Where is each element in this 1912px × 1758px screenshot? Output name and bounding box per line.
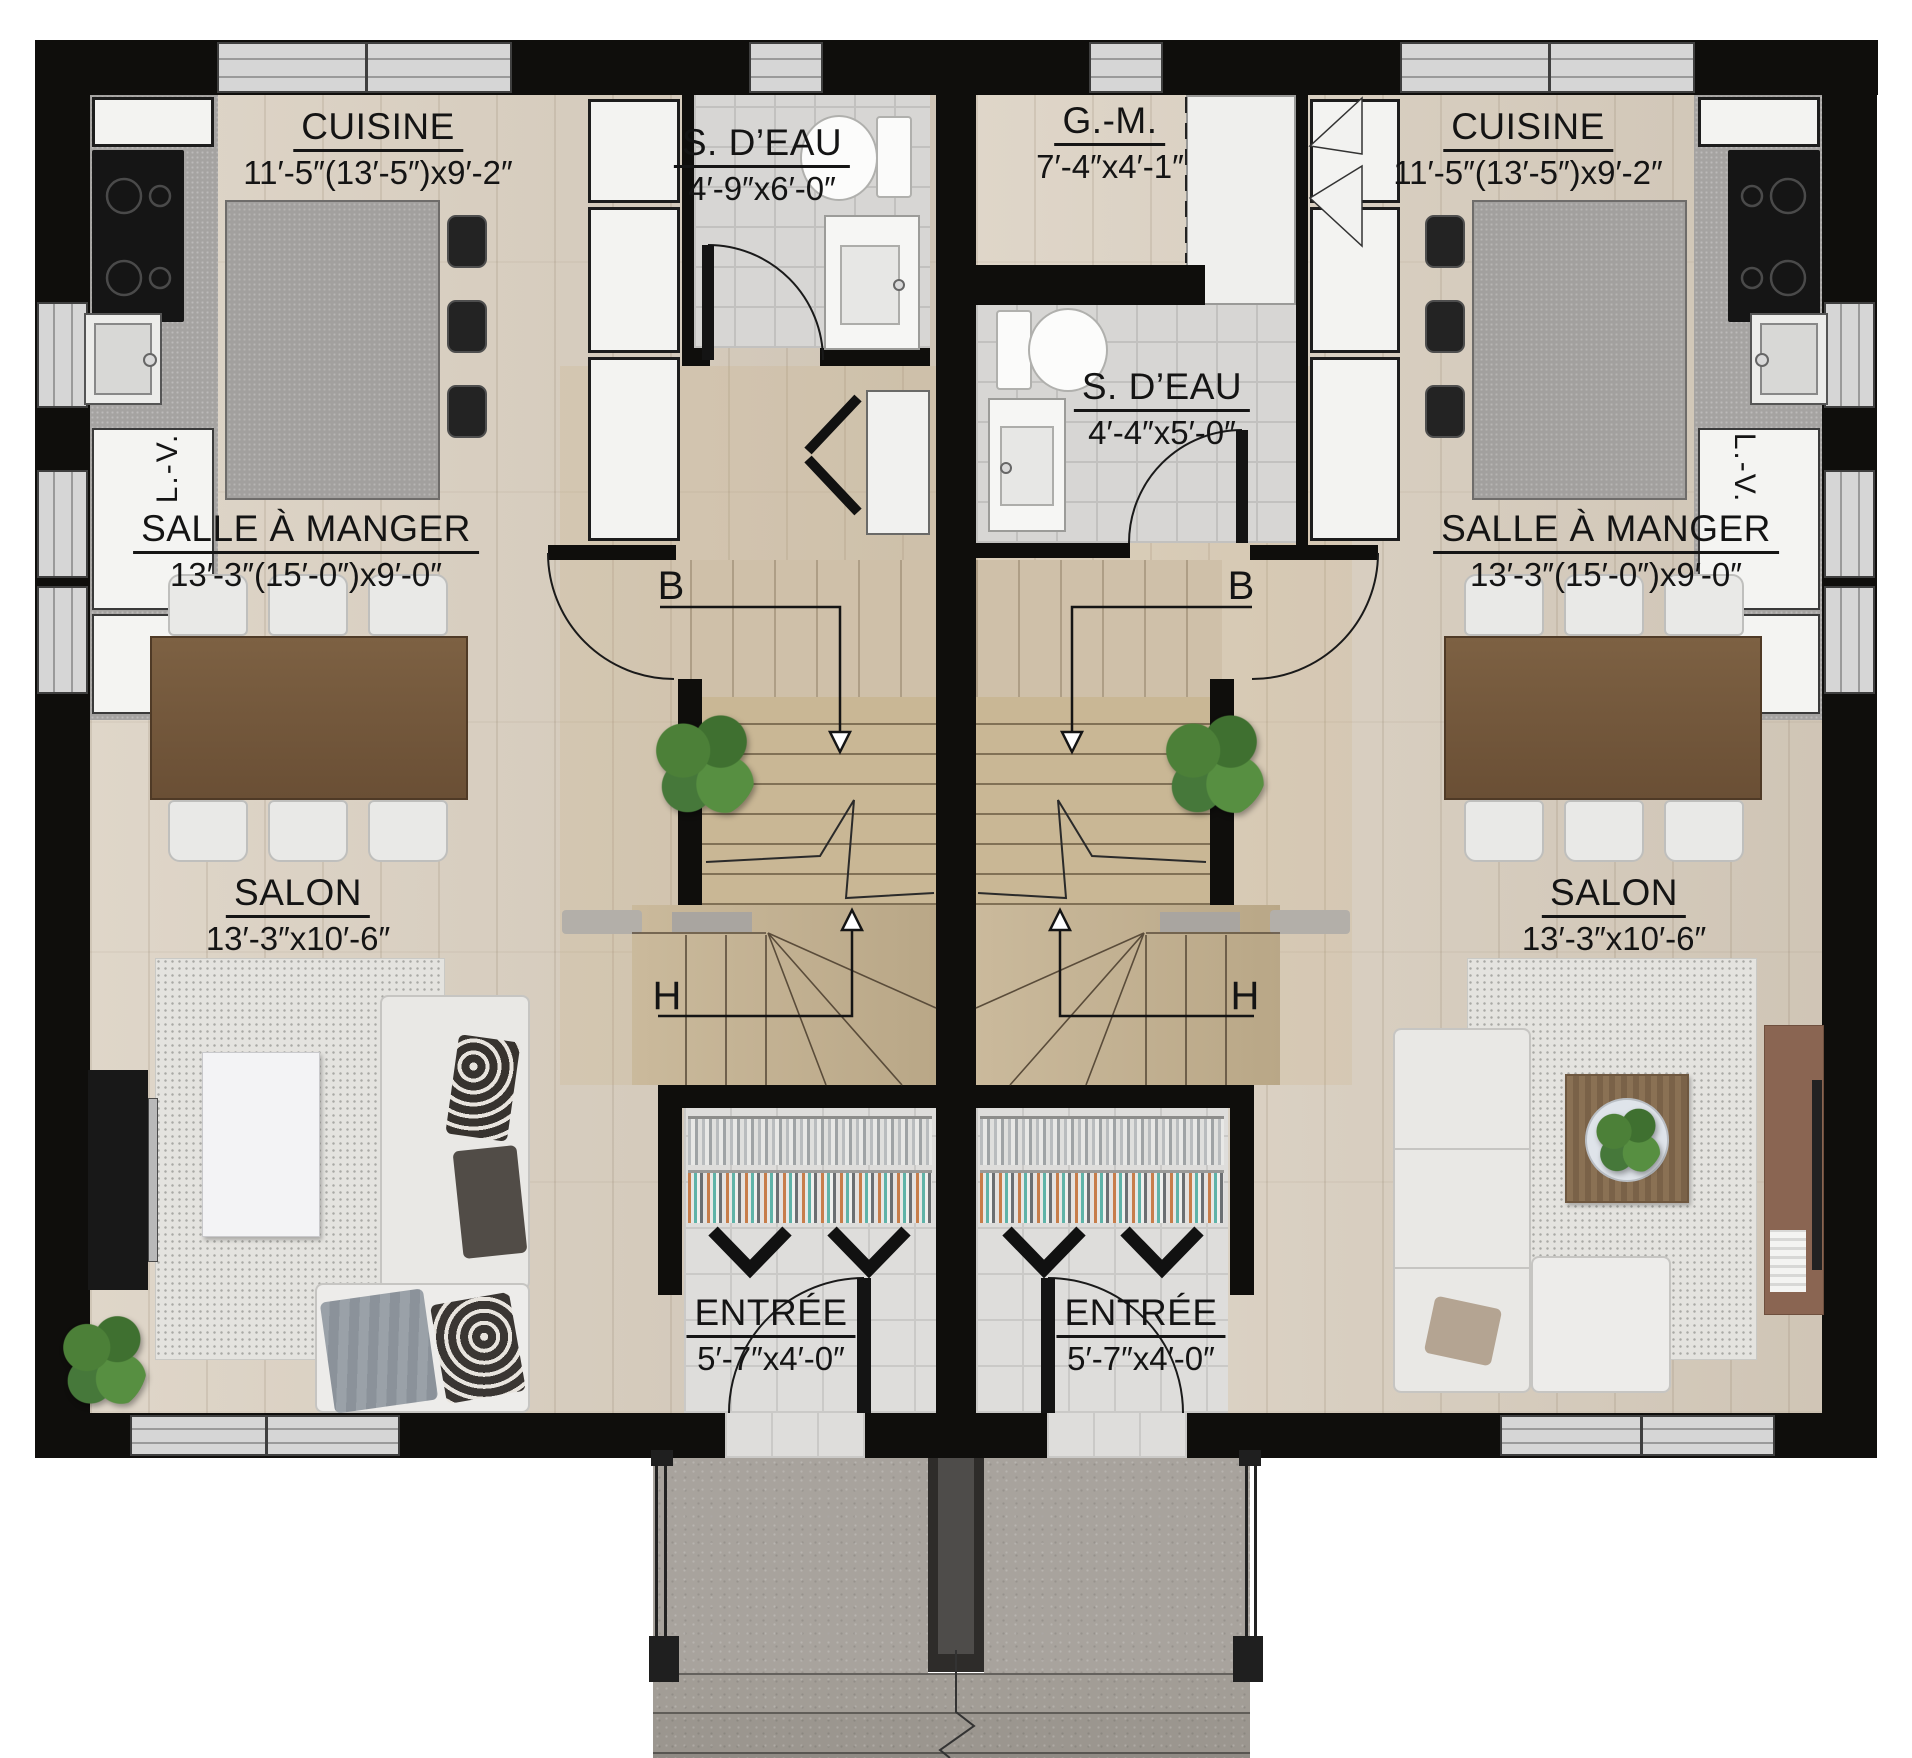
room-dims: 4′-9″x6′-0″ [674,170,850,208]
closet-right-side-wall [1230,1085,1254,1295]
stair-landing-right [976,560,1222,697]
stair-step-gray-right [1270,910,1350,934]
window-top-garde-manger [1089,42,1163,93]
sofa-pillow [453,1145,528,1259]
fridge-right [1310,99,1400,203]
kitchen-left-sink-basin [94,323,152,395]
sofa-throw-blanket [320,1288,439,1413]
stool [1425,385,1465,438]
room-label-garde-manger: G.-M. 7′-4″x4′-1″ [1036,100,1184,186]
room-label-sdeau-left: S. D’EAU 4′-9″x6′-0″ [674,122,850,208]
porch-step-1 [653,1673,1250,1714]
stair-step-gray-left [562,910,642,934]
window-mullion [265,1417,268,1454]
kitchen-island-left [225,200,440,500]
stool [447,385,487,438]
room-label-salle-a-manger-right: SALLE À MANGER 13′-3″(15′-0″)x9′-0″ [1433,508,1779,594]
stair-step-gray-right2 [1160,912,1240,932]
stool [1425,300,1465,353]
bathroom-left-bottom-wall-a [694,348,710,366]
book-stack-right [1770,1230,1806,1292]
label-lave-vaisselle-right: L.-V. [1727,433,1761,504]
closet-hangers-right-bottom [980,1170,1224,1223]
closet-hangers-left-top [688,1116,932,1165]
porch-slab-left [653,1458,928,1673]
room-name: SALLE À MANGER [1433,508,1779,554]
bathroom-right-bottom-wall [976,543,1130,558]
dining-chair [1464,800,1544,862]
dining-table-left [150,636,468,800]
porch-post-left-base [649,1636,679,1682]
tv-console-left [88,1070,148,1290]
room-name: SALON [1542,872,1686,918]
bathroom-right-side-wall [1296,95,1308,545]
range-left [92,150,184,322]
room-name: ENTRÉE [686,1292,855,1338]
vanity-basin-left [840,245,900,325]
vanity-basin-right [1000,426,1054,506]
stair-door-leaf-left [548,545,676,560]
floor-plan: CUISINE 11′-5″(13′-5″)x9′-2″ S. D’EAU 4′… [0,0,1912,1758]
window-left-sink [37,302,88,408]
stair-marker-up-right: H [1231,974,1260,1019]
pantry-cabinet-left-b [588,357,680,541]
window-top-kitchen-right [1400,42,1695,93]
kitchen-right-upper-cabinet [1698,97,1820,147]
window-right-sink [1824,302,1875,408]
dining-chair [1564,800,1644,862]
closet-right-top-wall [976,1085,1252,1108]
window-top-bathroom-left [749,42,823,93]
closet-hangers-left-bottom [688,1170,932,1223]
window-left-dining-a [37,470,88,578]
porch-post-right-cap [1239,1450,1261,1466]
toilet-tank-right [996,310,1032,390]
closet-hangers-right-top [980,1116,1224,1165]
room-dims: 11′-5″(13′-5″)x9′-2″ [243,154,512,192]
window-right-dining-a [1824,470,1875,578]
room-label-entree-left: ENTRÉE 5′-7″x4′-0″ [686,1292,855,1378]
room-name: S. D’EAU [674,122,850,168]
window-mullion [1548,44,1551,91]
label-lave-vaisselle-left: L.-V. [151,433,185,504]
window-mullion [1640,1417,1643,1454]
porch-post-right-base [1233,1636,1263,1682]
porch-step-3 [653,1752,1250,1758]
stair-marker-up-left: H [653,974,682,1019]
garde-manger-bottom-wall [976,265,1205,305]
closet-left-top-wall [660,1085,936,1108]
plant-stair-right [1158,708,1268,820]
window-right-dining-b [1824,586,1875,694]
dining-chair [268,800,348,862]
exterior-wall-right [1822,40,1877,1458]
room-dims: 5′-7″x4′-0″ [1056,1340,1225,1378]
stair-door-leaf-right [1250,545,1378,560]
stool [447,300,487,353]
room-label-salon-right: SALON 13′-3″x10′-6″ [1522,872,1706,958]
tv-screen-left [148,1098,158,1262]
range-right [1728,150,1820,322]
stool [447,215,487,268]
coffee-table-left [202,1052,320,1237]
room-dims: 7′-4″x4′-1″ [1036,148,1184,186]
porch-step-2 [653,1712,1250,1754]
plant-stair-left [648,708,758,820]
room-dims: 13′-3″x10′-6″ [206,920,390,958]
tv-screen-right [1812,1080,1822,1270]
room-label-sdeau-right: S. D’EAU 4′-4″x5′-0″ [1074,366,1250,452]
room-name: SALLE À MANGER [133,508,479,554]
stool [1425,215,1465,268]
kitchen-left-upper-cabinet [92,97,214,147]
room-dims: 13′-3″x10′-6″ [1522,920,1706,958]
stair-marker-down-right: B [1228,564,1255,609]
stair-landing-left [690,560,936,697]
room-name: G.-M. [1055,100,1166,146]
porch-slab-right [984,1458,1250,1673]
entry-left-threshold [725,1413,865,1458]
window-top-kitchen-left [217,42,512,93]
room-dims: 13′-3″(15′-0″)x9′-0″ [1433,556,1779,594]
room-label-salle-a-manger-left: SALLE À MANGER 13′-3″(15′-0″)x9′-0″ [133,508,479,594]
room-name: SALON [226,872,370,918]
porch-post-left-cap [651,1450,673,1466]
room-name: CUISINE [293,106,463,152]
kitchen-right-sink-basin [1760,323,1818,395]
dining-chair [368,800,448,862]
porch-post-left [655,1458,667,1650]
toilet-tank-left [876,116,912,198]
window-bottom-salon-left [130,1415,400,1456]
exterior-wall-left [35,40,90,1458]
sofa-pillow [430,1292,526,1404]
dining-chair [1664,800,1744,862]
room-dims: 11′-5″(13′-5″)x9′-2″ [1393,154,1662,192]
room-dims: 4′-4″x5′-0″ [1074,414,1250,452]
porch-divider-inner [938,1458,974,1654]
room-dims: 5′-7″x4′-0″ [686,1340,855,1378]
room-label-cuisine-right: CUISINE 11′-5″(13′-5″)x9′-2″ [1393,106,1662,192]
sofa-right-seat [1531,1256,1671,1393]
pantry-cabinet-right-a [1310,207,1400,353]
fridge-left [588,99,680,203]
bathroom-left-bottom-wall-b [820,348,930,366]
room-name: S. D’EAU [1074,366,1250,412]
entry-right-threshold [1047,1413,1187,1458]
kitchen-island-right [1472,200,1687,500]
dining-table-right [1444,636,1762,800]
hall-closet-panel-left [866,390,930,535]
porch-post-right [1245,1458,1257,1650]
window-mullion [365,44,368,91]
party-wall [936,95,976,1458]
room-label-salon-left: SALON 13′-3″x10′-6″ [206,872,390,958]
room-label-cuisine-left: CUISINE 11′-5″(13′-5″)x9′-2″ [243,106,512,192]
pantry-cabinet-left-a [588,207,680,353]
room-name: ENTRÉE [1056,1292,1225,1338]
pantry-cabinet-right-b [1310,357,1400,541]
window-left-dining-b [37,586,88,694]
room-name: CUISINE [1443,106,1613,152]
closet-left-side-wall [658,1085,682,1295]
dining-chair [168,800,248,862]
room-dims: 13′-3″(15′-0″)x9′-0″ [133,556,479,594]
stair-step-gray-left2 [672,912,752,932]
plant-salon-left [58,1308,148,1412]
stair-marker-down-left: B [658,564,685,609]
room-label-entree-right: ENTRÉE 5′-7″x4′-0″ [1056,1292,1225,1378]
plant-coffee-table-right [1591,1104,1663,1176]
window-bottom-salon-right [1500,1415,1775,1456]
